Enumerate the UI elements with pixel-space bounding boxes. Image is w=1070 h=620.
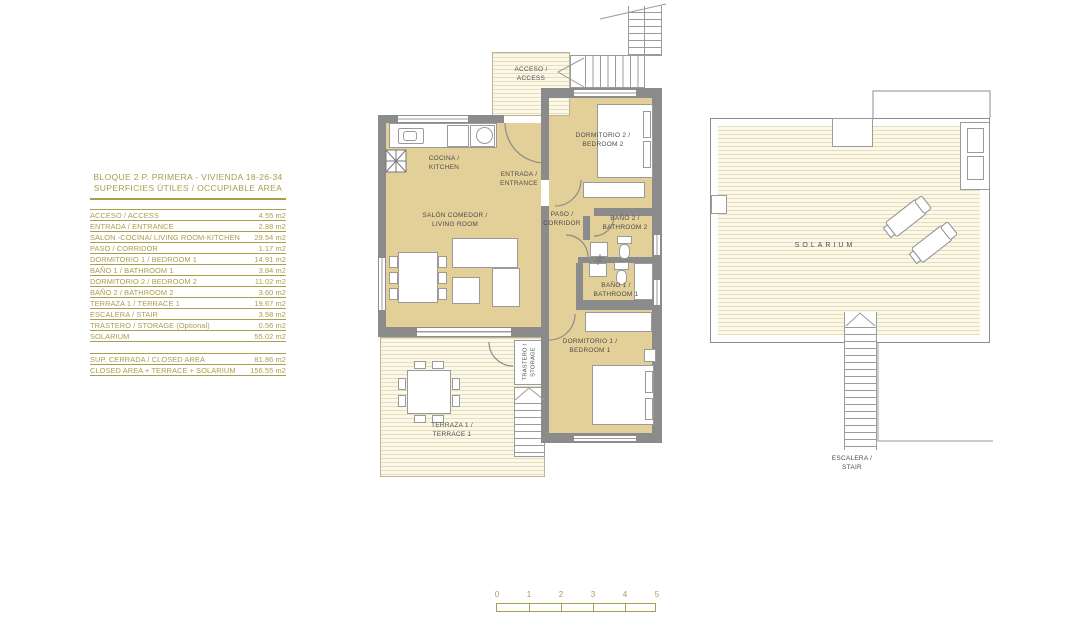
room-label-terraza: TERRAZA 1 / TERRACE 1: [431, 422, 473, 440]
label-line: PASO /: [551, 211, 574, 218]
room-label-bano1: BAÑO 1 / BATHROOM 1: [594, 282, 639, 300]
summary-row: SUP. CERRADA / CLOSED AREA81.86 m2: [90, 354, 286, 365]
bedroom1-door-arc: [549, 314, 575, 340]
row-value: 81.86 m2: [254, 356, 286, 365]
room-label-bano2: BAÑO 2 / BATHROOM 2: [603, 215, 648, 233]
scale-tick: [561, 604, 562, 611]
title-rule: [90, 198, 286, 200]
table-row: PASO / CORRIDOR1.17 m2: [90, 243, 286, 254]
label-line: BATHROOM 1: [594, 291, 639, 298]
room-label-dormitorio2: DORMITORIO 2 / BEDROOM 2: [576, 132, 631, 150]
table-row: BAÑO 1 / BATHROOM 13.84 m2: [90, 265, 286, 276]
row-value: 19.67 m2: [254, 300, 286, 309]
row-label: ESCALERA / STAIR: [90, 311, 158, 320]
lower-floor-outline: [878, 343, 993, 441]
label-line: TERRACE 1: [433, 431, 472, 438]
scale-number: 3: [587, 590, 599, 599]
solarium-stair-arrow: [846, 313, 875, 326]
row-label: ENTRADA / ENTRANCE: [90, 223, 174, 232]
label-line: BEDROOM 2: [582, 141, 623, 148]
table-row: DORMITORIO 1 / BEDROOM 114.91 m2: [90, 254, 286, 265]
row-value: 1.17 m2: [259, 245, 286, 254]
row-value: 156.55 m2: [250, 367, 286, 376]
row-label: SALON -COCINA/ LIVING ROOM-KITCHEN: [90, 234, 240, 243]
row-label: ACCESO / ACCESS: [90, 212, 159, 221]
table-row: ENTRADA / ENTRANCE2.88 m2: [90, 221, 286, 232]
label-line: BAÑO 1 /: [601, 282, 630, 289]
table-row: BAÑO 2 / BATHROOM 23.60 m2: [90, 287, 286, 298]
row-label: SUP. CERRADA / CLOSED AREA: [90, 356, 205, 365]
label-line: ENTRADA /: [501, 171, 538, 178]
room-label-trastero: TRASTERO / STORAGE: [522, 344, 537, 381]
summary-row: CLOSED AREA + TERRACE + SOLARIUM156.55 m…: [90, 365, 286, 376]
row-value: 0.56 m2: [259, 322, 286, 331]
row-label: DORMITORIO 1 / BEDROOM 1: [90, 256, 197, 265]
sun-lounger-icon: [882, 195, 932, 240]
area-table: ACCESO / ACCESS4.55 m2 ENTRADA / ENTRANC…: [90, 209, 286, 342]
row-value: 11.02 m2: [255, 278, 286, 287]
label-line: LIVING ROOM: [432, 221, 478, 228]
row-label: PASO / CORRIDOR: [90, 245, 158, 254]
label-line: COCINA /: [429, 155, 460, 162]
row-value: 4.55 m2: [259, 212, 286, 221]
scale-number: 2: [555, 590, 567, 599]
sun-lounger-icon: [908, 221, 958, 266]
room-label-solarium: SOLARIUM: [795, 241, 856, 250]
label-line: TRASTERO /: [522, 344, 528, 381]
label-line: SOLARIUM: [795, 242, 856, 249]
hob-icon: [386, 150, 406, 172]
scale-tick: [625, 604, 626, 611]
room-label-entrada: ENTRADA / ENTRANCE: [500, 171, 538, 189]
room-label-dormitorio1: DORMITORIO 1 / BEDROOM 1: [563, 338, 618, 356]
table-row: ACCESO / ACCESS4.55 m2: [90, 210, 286, 221]
label-line: DORMITORIO 2 /: [576, 132, 631, 139]
table-row: SALON -COCINA/ LIVING ROOM-KITCHEN29.54 …: [90, 232, 286, 243]
row-label: DORMITORIO 2 / BEDROOM 2: [90, 278, 197, 287]
table-row: ESCALERA / STAIR3.58 m2: [90, 309, 286, 320]
area-table-panel: BLOQUE 2 P. PRIMERA - VIVIENDA 18-26-34 …: [90, 172, 286, 376]
tap-icon: [594, 254, 604, 265]
label-line: TERRAZA 1 /: [431, 422, 473, 429]
floor-plan-sheet: ACCESO / ACCESS COCINA / KITCHEN ENTRADA…: [0, 0, 1070, 620]
label-line: ACCESS: [517, 75, 545, 82]
row-value: 2.88 m2: [259, 223, 286, 232]
panel-title-line1: BLOQUE 2 P. PRIMERA - VIVIENDA 18-26-34: [90, 172, 286, 183]
bedroom2-door-arc: [555, 180, 581, 206]
label-line: CORRIDOR: [543, 220, 580, 227]
label-line: BATHROOM 2: [603, 224, 648, 231]
row-value: 14.91 m2: [254, 256, 286, 265]
scale-tick: [529, 604, 530, 611]
table-row: DORMITORIO 2 / BEDROOM 211.02 m2: [90, 276, 286, 287]
label-line: BEDROOM 1: [569, 347, 610, 354]
room-label-salon: SALÓN COMEDOR / LIVING ROOM: [422, 212, 487, 230]
row-value: 29.54 m2: [254, 234, 286, 243]
scale-bar: [496, 603, 656, 612]
label-line: STORAGE: [530, 347, 536, 377]
row-label: BAÑO 2 / BATHROOM 2: [90, 289, 174, 298]
room-label-escalera: ESCALERA / STAIR: [832, 455, 872, 473]
terrace-door-arc: [489, 342, 513, 366]
room-label-cocina: COCINA / KITCHEN: [429, 155, 460, 173]
scale-tick: [593, 604, 594, 611]
bath1-door-arc: [566, 235, 588, 257]
stair-break-line: [600, 4, 666, 19]
table-row: SOLARIUM55.02 m2: [90, 331, 286, 342]
row-label: SOLARIUM: [90, 333, 129, 342]
scale-number: 0: [491, 590, 503, 599]
label-line: ACCESO /: [514, 66, 547, 73]
row-value: 3.84 m2: [259, 267, 286, 276]
roof-outline: [873, 91, 990, 118]
room-label-paso: PASO / CORRIDOR: [543, 211, 580, 229]
row-value: 55.02 m2: [254, 333, 286, 342]
label-line: DORMITORIO 1 /: [563, 338, 618, 345]
row-value: 3.58 m2: [259, 311, 286, 320]
scale-number: 4: [619, 590, 631, 599]
row-label: CLOSED AREA + TERRACE + SOLARIUM: [90, 367, 236, 376]
label-line: ENTRANCE: [500, 180, 538, 187]
table-row: TERRAZA 1 / TERRACE 119.67 m2: [90, 298, 286, 309]
area-summary: SUP. CERRADA / CLOSED AREA81.86 m2 CLOSE…: [90, 353, 286, 376]
room-label-acceso: ACCESO / ACCESS: [514, 66, 547, 84]
scale-number: 5: [651, 590, 663, 599]
terrace-stair-arrow: [515, 388, 544, 400]
entrance-door-arc: [505, 123, 545, 163]
label-line: STAIR: [842, 464, 862, 471]
label-line: ESCALERA /: [832, 455, 872, 462]
label-line: SALÓN COMEDOR /: [422, 212, 487, 219]
label-line: BAÑO 2 /: [610, 215, 639, 222]
label-line: KITCHEN: [429, 164, 459, 171]
panel-title-line2: SUPERFICIES ÚTILES / OCCUPIABLE AREA: [90, 183, 286, 194]
row-value: 3.60 m2: [259, 289, 286, 298]
table-row: TRASTERO / STORAGE (Optional)0.56 m2: [90, 320, 286, 331]
row-label: TRASTERO / STORAGE (Optional): [90, 322, 210, 331]
row-label: BAÑO 1 / BATHROOM 1: [90, 267, 174, 276]
scale-number: 1: [523, 590, 535, 599]
access-stair-arrow: [558, 58, 584, 87]
row-label: TERRAZA 1 / TERRACE 1: [90, 300, 180, 309]
